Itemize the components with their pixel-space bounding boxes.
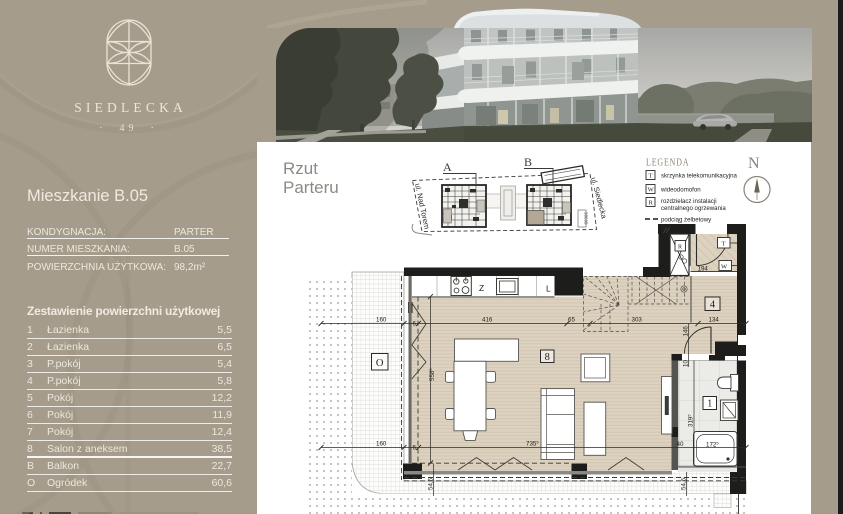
svg-text:6: 6: [413, 445, 417, 452]
svg-text:W: W: [648, 187, 655, 194]
svg-text:303: 303: [632, 317, 643, 324]
svg-text:194: 194: [698, 266, 709, 273]
svg-text:416: 416: [482, 317, 493, 324]
svg-text:4: 4: [710, 300, 716, 311]
svg-text:160: 160: [376, 441, 387, 448]
svg-text:54,6: 54,6: [681, 477, 688, 490]
svg-text:146: 146: [683, 326, 690, 337]
svg-text:6: 6: [413, 321, 417, 328]
svg-text:134: 134: [709, 317, 720, 324]
svg-text:N: N: [748, 155, 760, 172]
svg-text:160: 160: [376, 317, 387, 324]
svg-text:podciąg żelbetowy: podciąg żelbetowy: [661, 217, 712, 224]
svg-text:98698: 98698: [584, 212, 589, 225]
svg-text:10: 10: [683, 360, 690, 367]
svg-text:wideodomofon: wideodomofon: [660, 187, 701, 194]
svg-text:40: 40: [677, 441, 684, 448]
svg-text:R: R: [649, 200, 654, 207]
svg-text:B: B: [524, 155, 532, 169]
svg-text:1: 1: [707, 399, 712, 410]
svg-text:R: R: [678, 245, 682, 251]
svg-text:centralnego ogrzewania: centralnego ogrzewania: [661, 205, 726, 212]
svg-text:T: T: [722, 241, 726, 248]
svg-text:65: 65: [568, 317, 575, 324]
svg-text:8: 8: [545, 352, 550, 363]
svg-text:T: T: [649, 173, 653, 180]
svg-text:L: L: [546, 284, 551, 294]
svg-text:54,6: 54,6: [428, 477, 435, 490]
svg-text:ul. Nad Torem: ul. Nad Torem: [413, 183, 431, 230]
svg-text:Z: Z: [479, 283, 484, 293]
svg-text:A: A: [443, 160, 452, 174]
svg-text:skrzynka telekomunikacyjna: skrzynka telekomunikacyjna: [661, 173, 737, 180]
svg-text:W: W: [721, 263, 728, 270]
svg-text:LEGENDA: LEGENDA: [646, 158, 689, 169]
svg-text:O: O: [376, 358, 384, 369]
svg-text:rozdzielacz instalacji: rozdzielacz instalacji: [661, 198, 717, 205]
svg-text:ul. Siedlecka: ul. Siedlecka: [589, 176, 609, 220]
